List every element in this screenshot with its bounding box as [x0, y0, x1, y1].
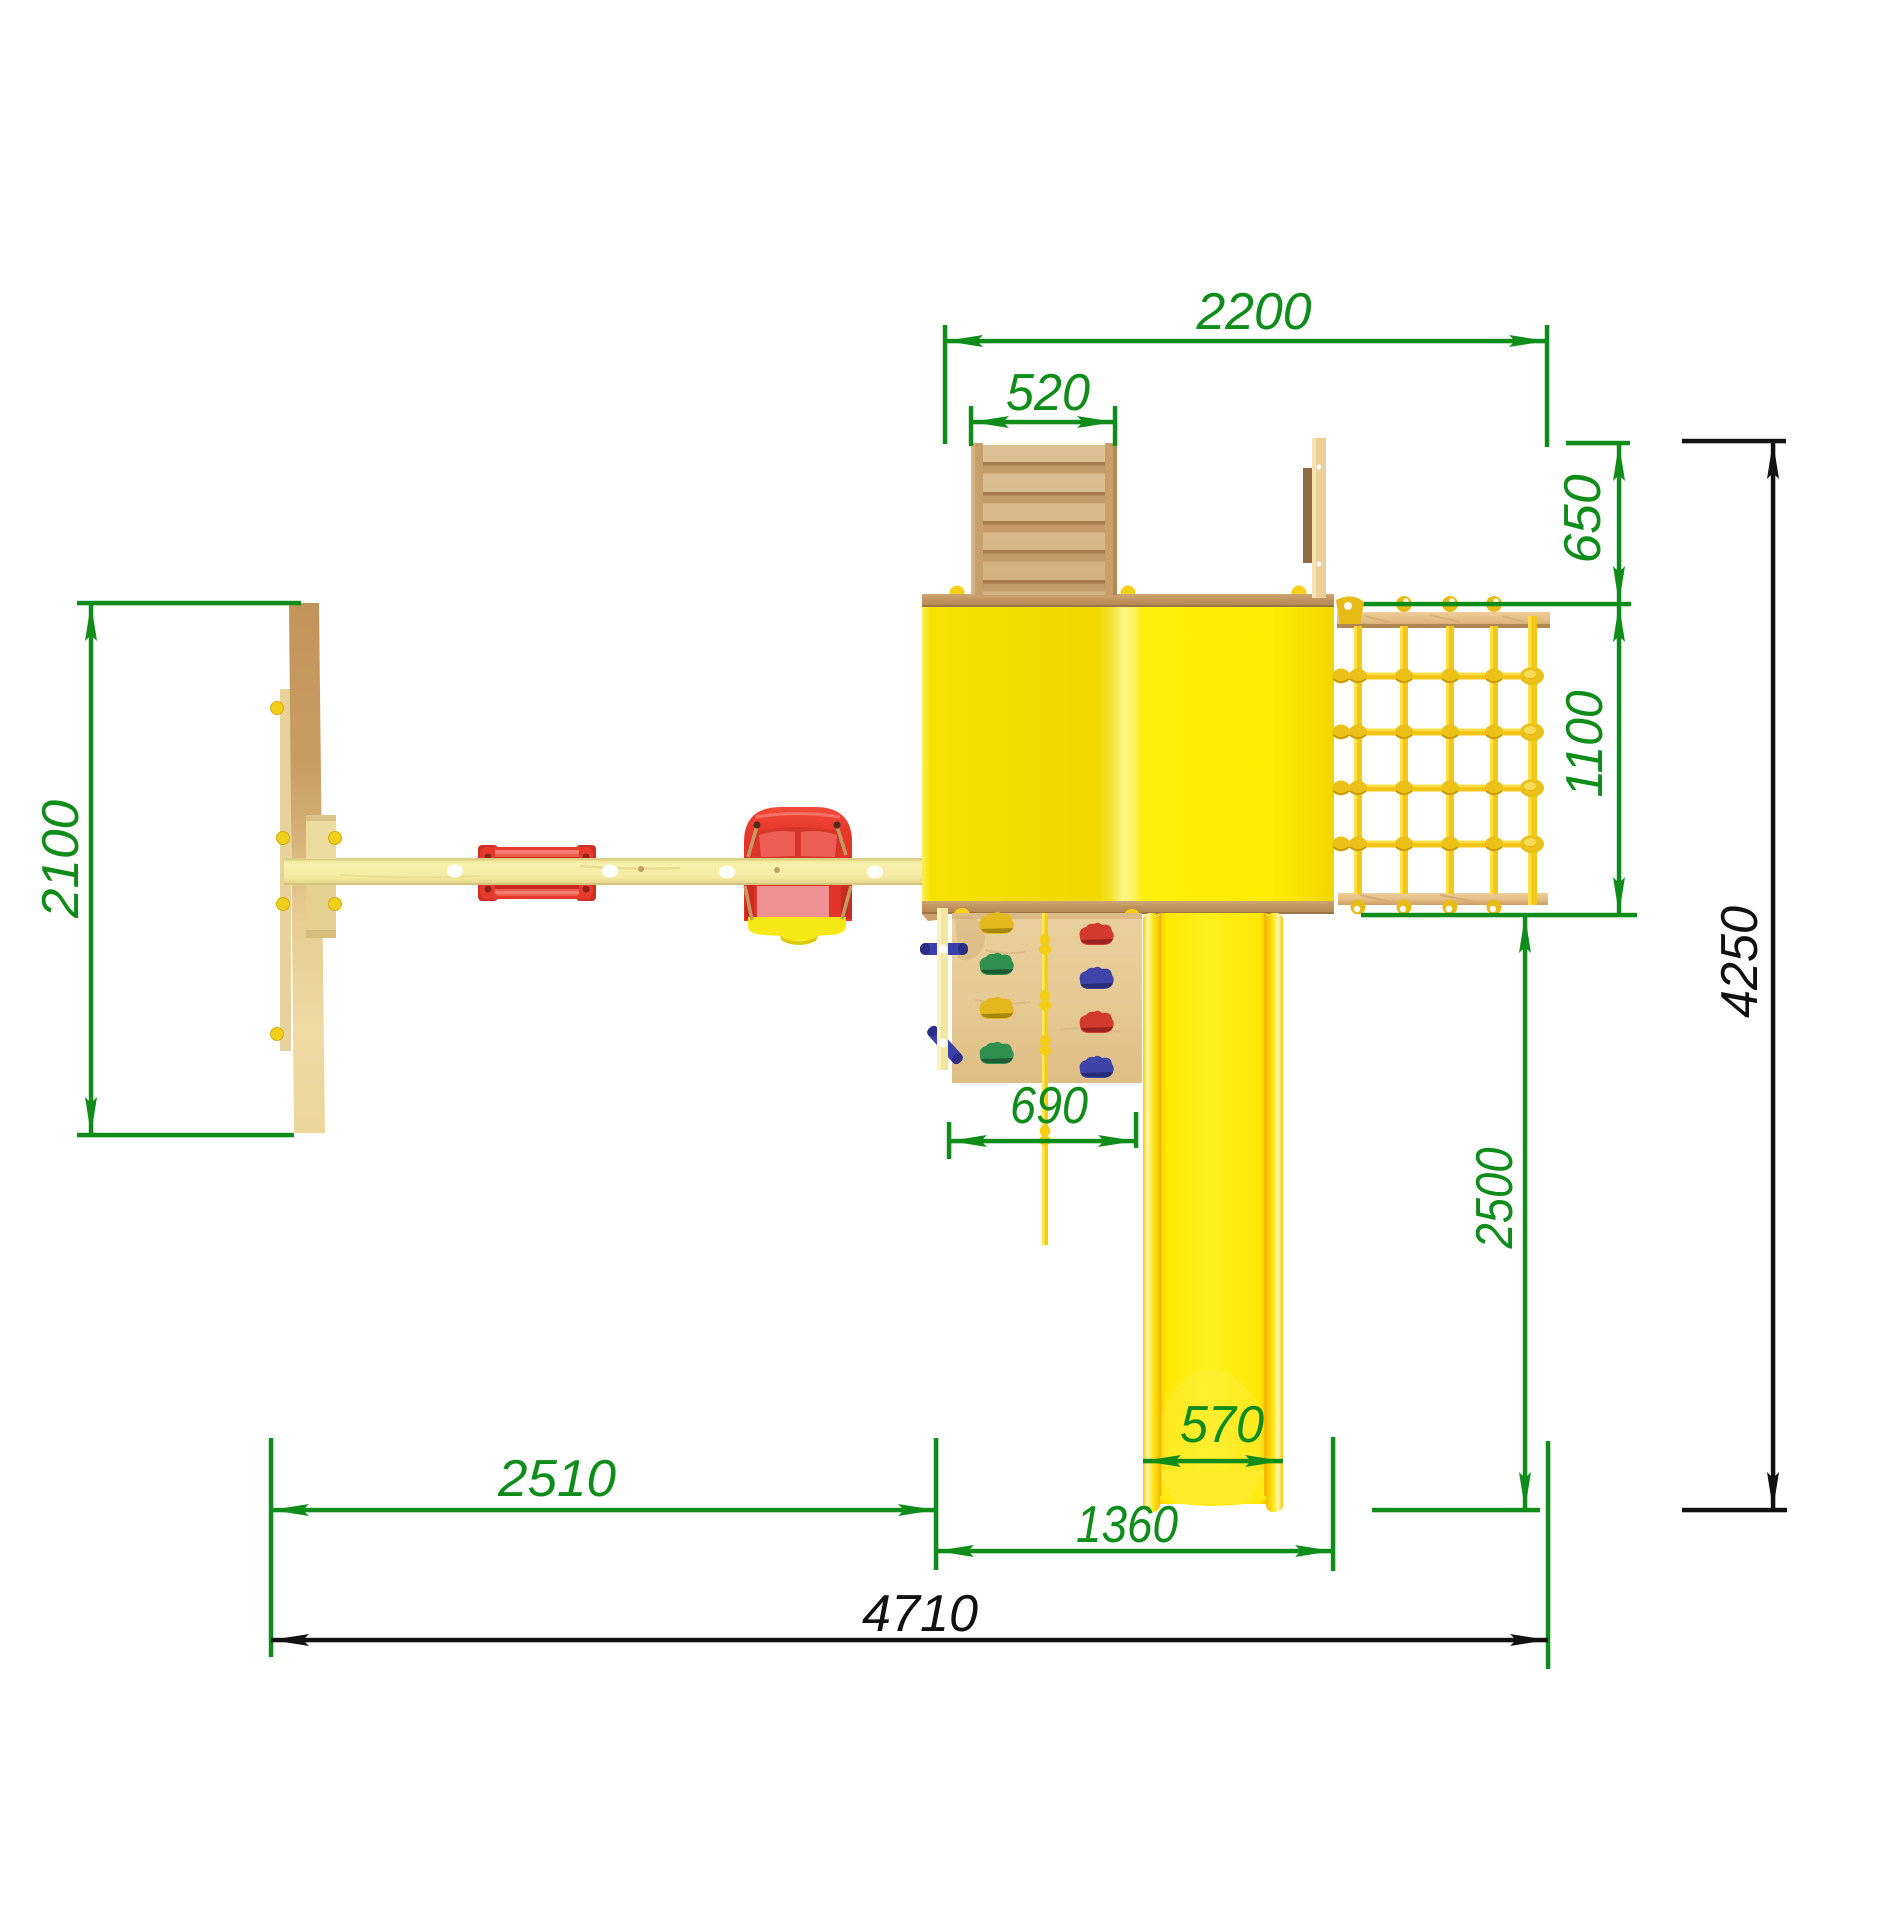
svg-text:2510: 2510: [497, 1450, 616, 1508]
svg-text:1360: 1360: [1076, 1496, 1178, 1554]
svg-text:690: 690: [1010, 1077, 1088, 1135]
svg-text:2200: 2200: [1196, 283, 1312, 341]
svg-text:520: 520: [1006, 364, 1090, 422]
svg-text:4250: 4250: [1711, 906, 1769, 1018]
svg-text:650: 650: [1554, 474, 1612, 563]
svg-text:2500: 2500: [1466, 1147, 1524, 1249]
svg-text:1100: 1100: [1556, 690, 1614, 797]
svg-text:570: 570: [1180, 1396, 1264, 1454]
svg-text:4710: 4710: [862, 1585, 978, 1643]
svg-text:2100: 2100: [32, 800, 90, 919]
